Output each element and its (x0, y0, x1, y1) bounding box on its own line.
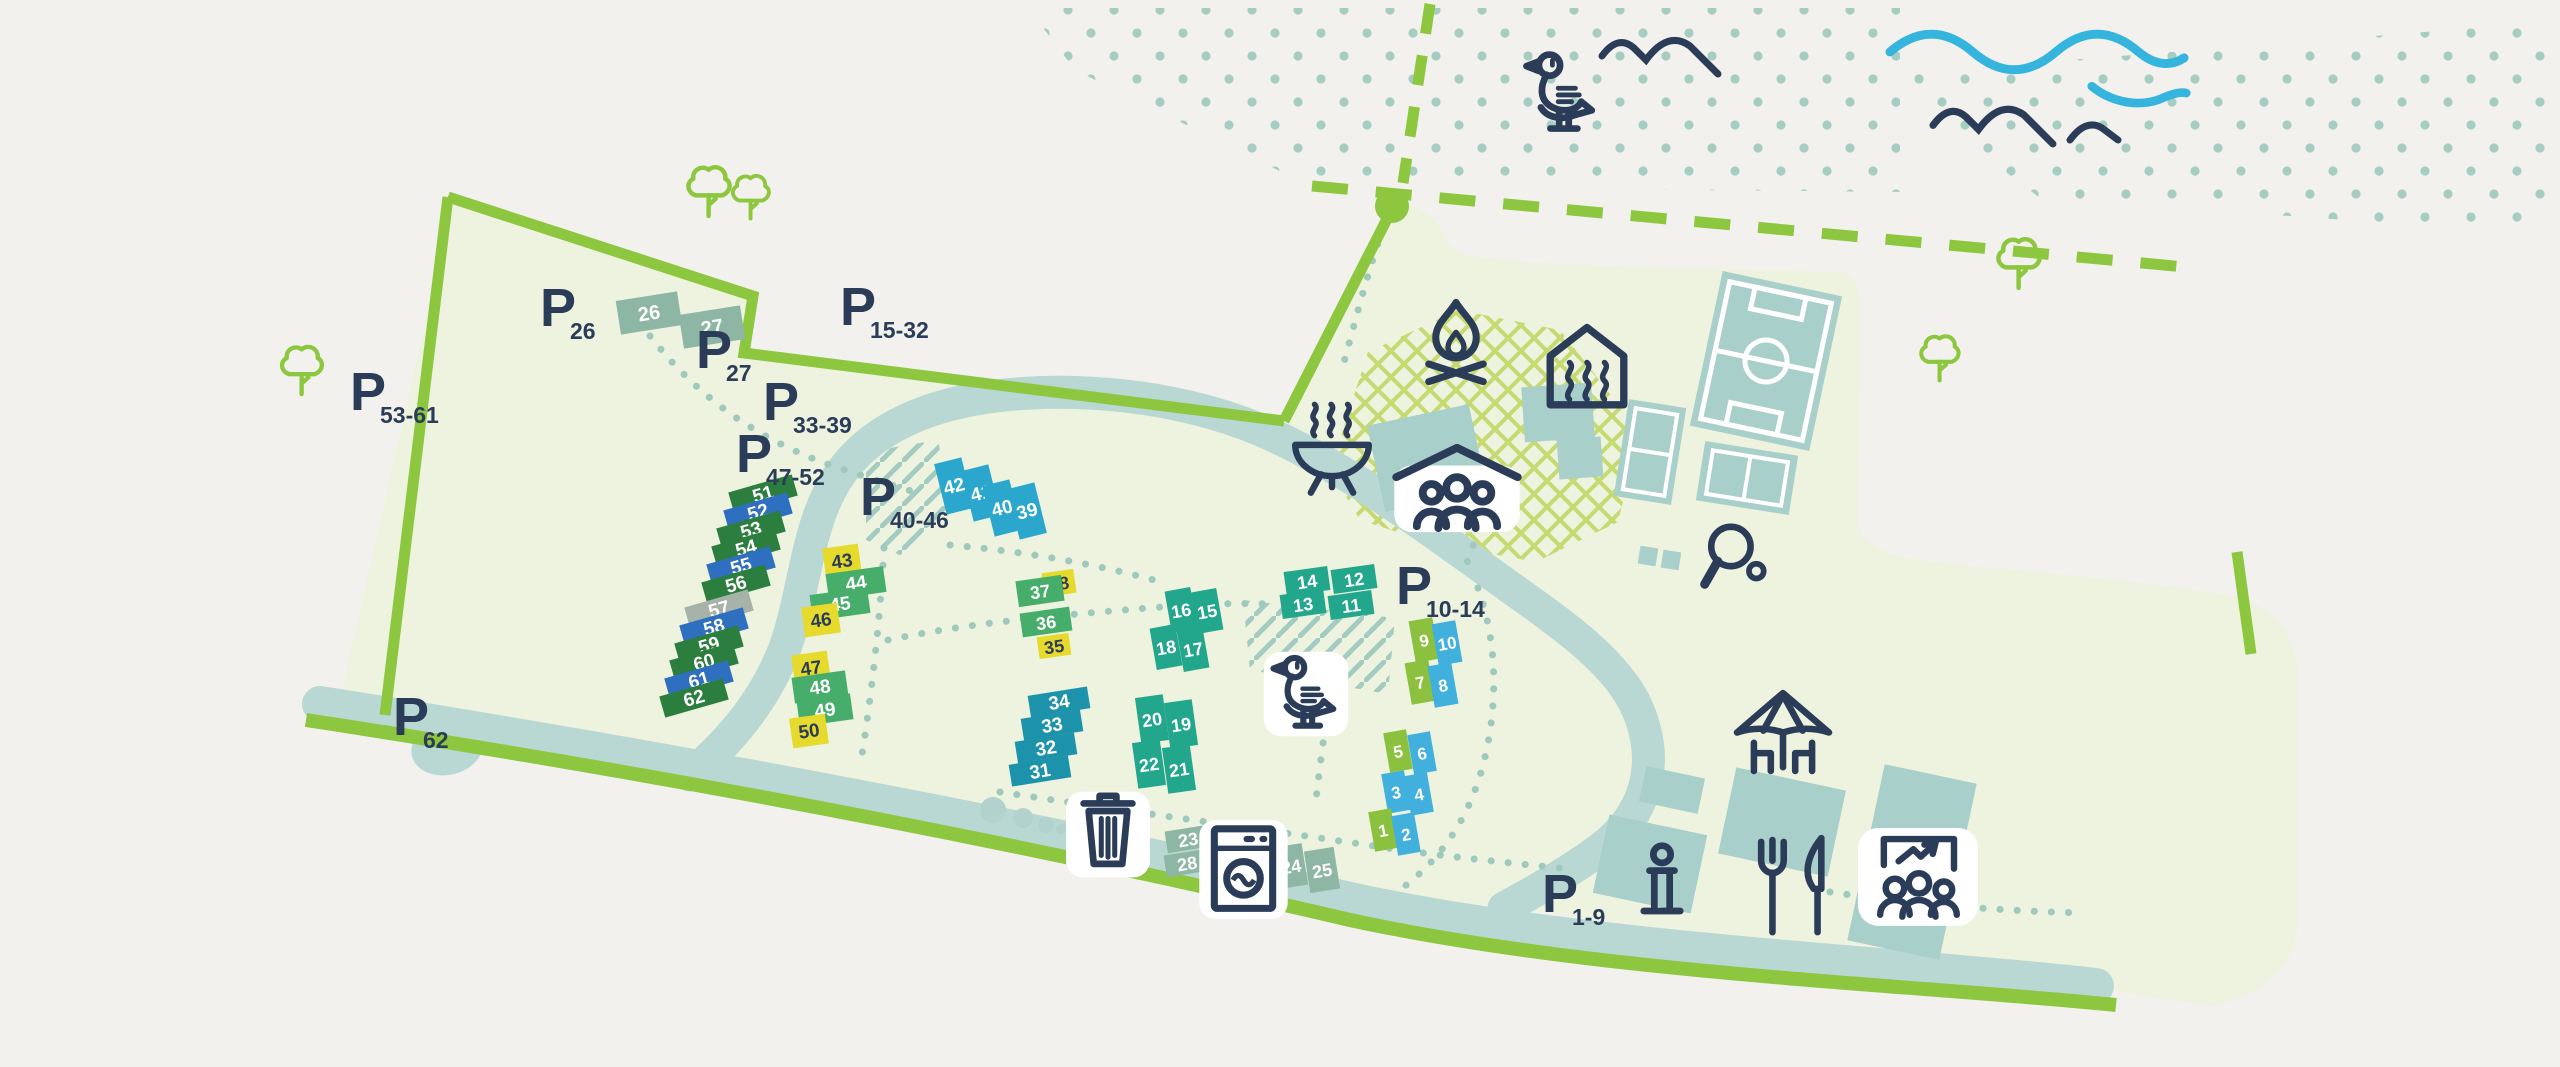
plot-number: 50 (797, 720, 821, 744)
building (1557, 437, 1604, 480)
washing-machine-icon[interactable] (1199, 820, 1287, 919)
parking-range: 53-61 (380, 402, 439, 428)
plot-number: 10 (1436, 633, 1458, 655)
plot-number: 16 (1170, 599, 1193, 622)
parking-range: 47-52 (766, 464, 825, 490)
plot-number: 25 (1311, 860, 1334, 883)
building (1638, 546, 1659, 567)
plot-50[interactable]: 50 (789, 714, 829, 749)
plot-number: 28 (1176, 853, 1199, 876)
plot-number: 22 (1138, 754, 1161, 777)
plot-number: 20 (1141, 709, 1164, 732)
plot-number: 26 (636, 301, 661, 326)
boundary-junction-dot (1375, 189, 1409, 223)
plot-number: 11 (1340, 595, 1362, 617)
parking-range: 10-14 (1426, 596, 1485, 622)
parking-range: 33-39 (793, 412, 852, 438)
plot-number: 48 (808, 676, 832, 700)
parking-range: 62 (423, 727, 449, 753)
trash-icon[interactable] (1066, 792, 1150, 878)
plot-number: 37 (1029, 581, 1052, 604)
plot-number: 43 (830, 550, 854, 574)
plot-number: 36 (1035, 612, 1058, 635)
plot-number: 23 (1177, 829, 1200, 852)
plot-number: 18 (1155, 636, 1178, 659)
plot-number: 19 (1170, 714, 1193, 737)
plot-number: 31 (1028, 760, 1053, 784)
plot-number: 15 (1196, 600, 1219, 623)
parking-range: 1-9 (1572, 904, 1605, 930)
parking-range: 27 (726, 360, 752, 386)
plot-number: 14 (1296, 571, 1319, 594)
map-canvas: 2627515253545556575859606162434445464748… (0, 0, 2560, 1067)
building (1661, 550, 1682, 571)
plot-35[interactable]: 35 (1037, 633, 1072, 659)
plot-number: 17 (1182, 638, 1205, 661)
duck-icon[interactable] (1264, 652, 1348, 736)
plot-number: 46 (809, 609, 833, 633)
meeting-room-icon[interactable] (1858, 828, 1978, 926)
plot-number: 12 (1343, 569, 1366, 592)
plot-number: 35 (1043, 636, 1066, 659)
plot-number: 32 (1034, 737, 1058, 761)
plot-46[interactable]: 46 (801, 603, 841, 638)
parking-range: 40-46 (890, 507, 949, 533)
plot-number: 21 (1168, 759, 1191, 782)
campsite-map: 2627515253545556575859606162434445464748… (0, 0, 2560, 1067)
parking-range: 15-32 (870, 317, 929, 343)
plot-number: 13 (1292, 594, 1315, 617)
plot-number: 33 (1040, 714, 1064, 738)
parking-range: 26 (570, 318, 596, 344)
